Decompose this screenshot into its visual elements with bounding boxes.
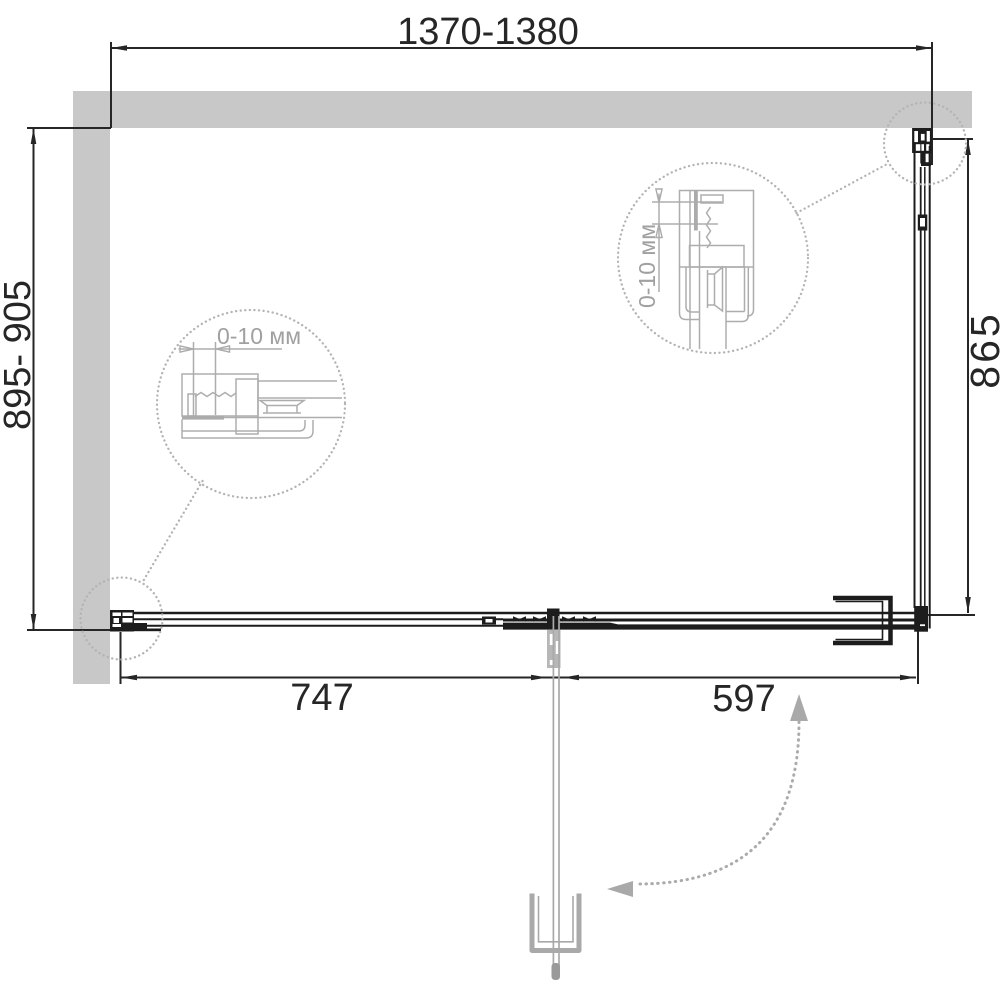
svg-text:0-10 мм: 0-10 мм [217, 323, 301, 349]
svg-text:747: 747 [290, 677, 353, 719]
svg-text:865: 865 [962, 311, 1000, 388]
svg-text:1370-1380: 1370-1380 [397, 11, 579, 53]
svg-text:0-10 мм: 0-10 мм [634, 224, 660, 308]
svg-text:895- 905: 895- 905 [0, 280, 39, 430]
svg-text:597: 597 [712, 678, 775, 720]
